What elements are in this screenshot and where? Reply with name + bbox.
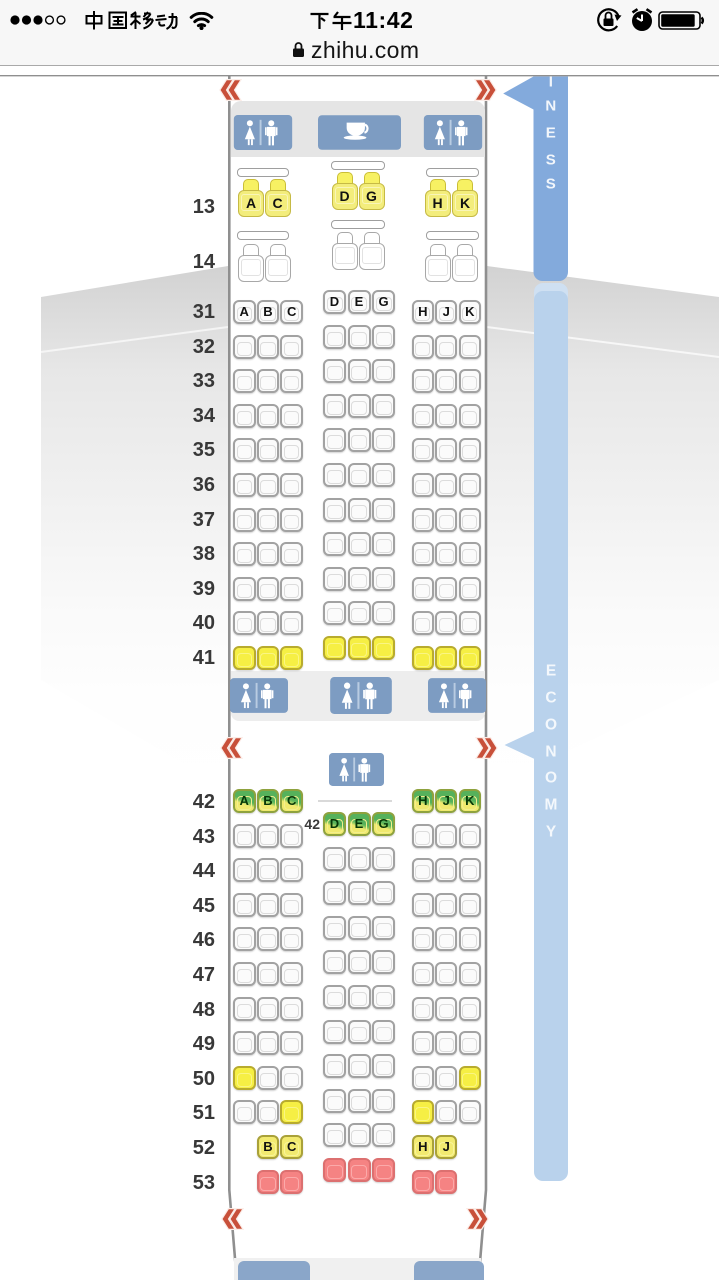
svg-text:S: S: [546, 176, 556, 193]
svg-text:N: N: [545, 744, 556, 761]
svg-text:E: E: [546, 663, 556, 680]
svg-text:O: O: [545, 717, 557, 734]
svg-text:O: O: [545, 770, 557, 787]
svg-text:Y: Y: [546, 824, 557, 841]
svg-text:S: S: [546, 152, 556, 169]
svg-text:M: M: [545, 797, 558, 814]
svg-text:C: C: [545, 690, 556, 707]
svg-text:N: N: [545, 98, 556, 115]
svg-text:I: I: [549, 76, 553, 91]
svg-text:E: E: [546, 125, 556, 142]
